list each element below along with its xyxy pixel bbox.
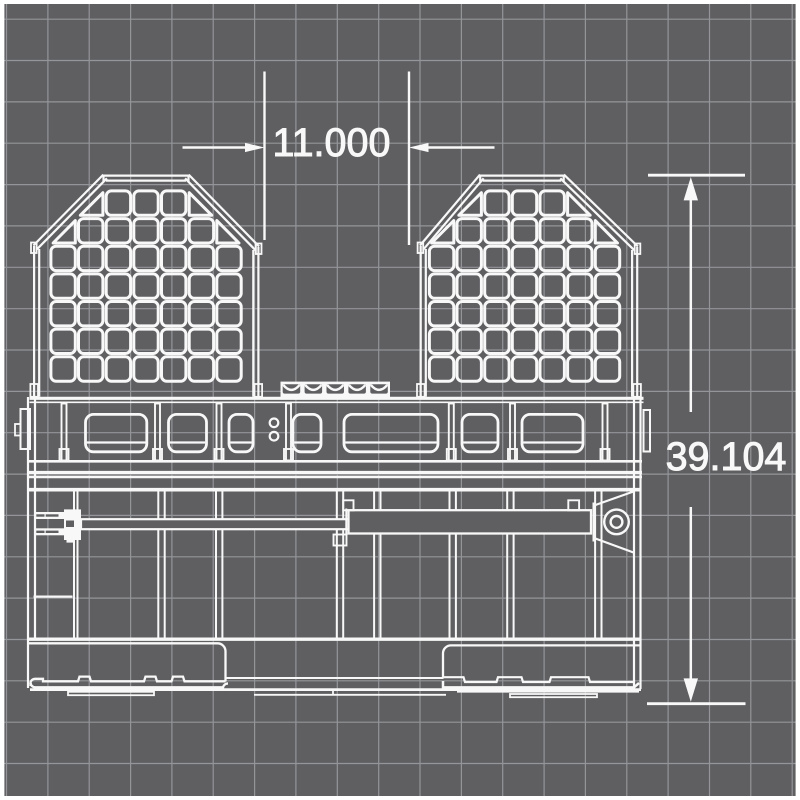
svg-text:39.104: 39.104 xyxy=(666,435,787,479)
svg-text:11.000: 11.000 xyxy=(273,121,391,165)
